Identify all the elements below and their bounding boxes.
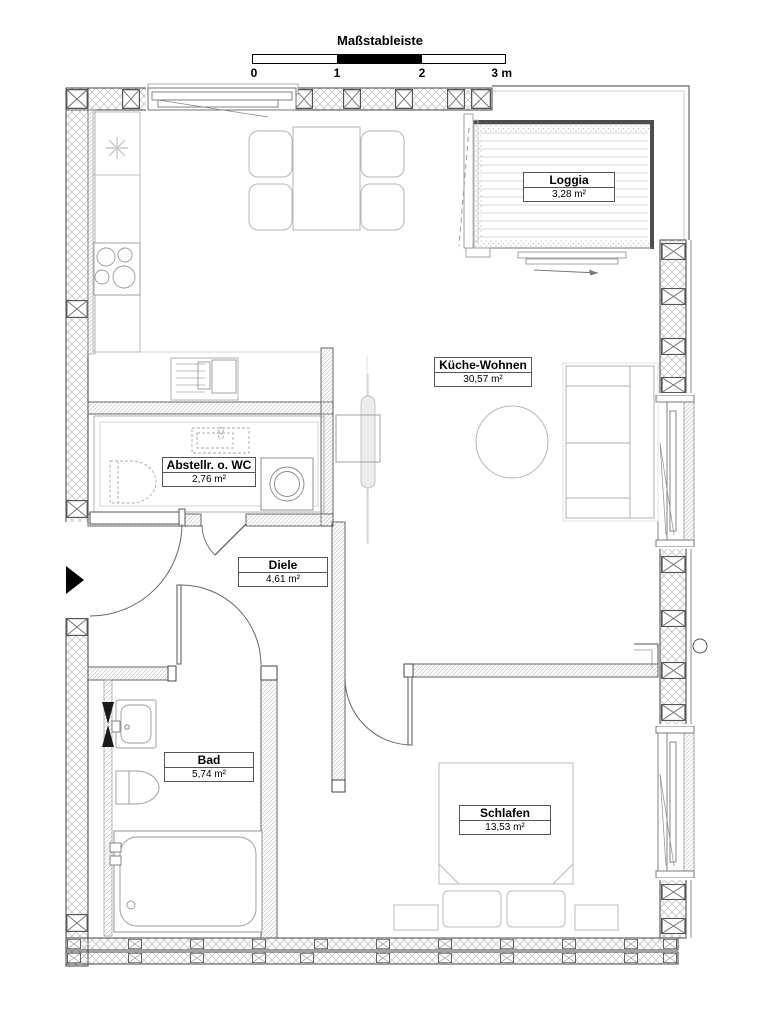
pillow [507, 891, 565, 927]
bathroom-fixtures [102, 700, 262, 932]
room-label-loggia: Loggia 3,28 m² [523, 172, 615, 202]
light-symbol [106, 137, 128, 159]
door-swing [345, 677, 412, 745]
room-area: 30,57 m² [435, 373, 531, 386]
room-area: 2,76 m² [163, 473, 255, 486]
room-area: 5,74 m² [165, 768, 253, 781]
nightstand [394, 905, 438, 930]
chair [249, 184, 292, 230]
loggia-slider [518, 252, 626, 276]
toilet [116, 771, 159, 804]
chair [249, 131, 292, 177]
washing-machine [261, 458, 313, 510]
chair [361, 131, 404, 177]
bedroom-door [345, 677, 412, 745]
room-label-schlafen: Schlafen 13,53 m² [459, 805, 551, 835]
door-swing [90, 524, 182, 616]
storage-door [202, 524, 246, 555]
door-swing [181, 585, 261, 665]
pillow [443, 891, 501, 927]
planned-basin [192, 428, 249, 454]
living-room-window [654, 395, 696, 547]
living-furniture [336, 363, 658, 544]
chair [361, 184, 404, 230]
kitchen-sink [171, 358, 238, 400]
room-area: 4,61 m² [239, 573, 327, 586]
bath-door [177, 585, 261, 665]
bathtub [110, 831, 262, 932]
room-area: 3,28 m² [524, 188, 614, 201]
room-name: Diele [239, 558, 327, 573]
room-name: Schlafen [460, 806, 550, 821]
door-swing [202, 525, 215, 555]
planned-toilet [110, 461, 156, 503]
loggia-step [466, 248, 490, 257]
drainpipe [693, 639, 707, 653]
round-table [476, 406, 548, 478]
room-name: Loggia [524, 173, 614, 188]
room-label-abstellraum: Abstellr. o. WC 2,76 m² [162, 457, 256, 487]
room-label-bad: Bad 5,74 m² [164, 752, 254, 782]
radiator [336, 374, 380, 544]
room-name: Küche-Wohnen [435, 358, 531, 373]
floor-plan-page: Maßstableiste 0 1 2 3 m [0, 0, 778, 1024]
room-area: 13,53 m² [460, 821, 550, 834]
roof-outline [492, 86, 689, 240]
dining-table [293, 127, 360, 230]
nightstand [575, 905, 618, 930]
room-label-kueche-wohnen: Küche-Wohnen 30,57 m² [434, 357, 532, 387]
bedroom-window [654, 726, 696, 878]
dining-set [249, 127, 404, 230]
sofa [563, 363, 658, 521]
hand-basin [112, 700, 156, 748]
bedroom-furniture [394, 763, 618, 930]
floor-plan-drawing [0, 0, 778, 1024]
kitchen-window [148, 84, 298, 117]
room-label-diele: Diele 4,61 m² [238, 557, 328, 587]
room-name: Bad [165, 753, 253, 768]
stove [94, 243, 140, 295]
room-name: Abstellr. o. WC [163, 458, 255, 473]
